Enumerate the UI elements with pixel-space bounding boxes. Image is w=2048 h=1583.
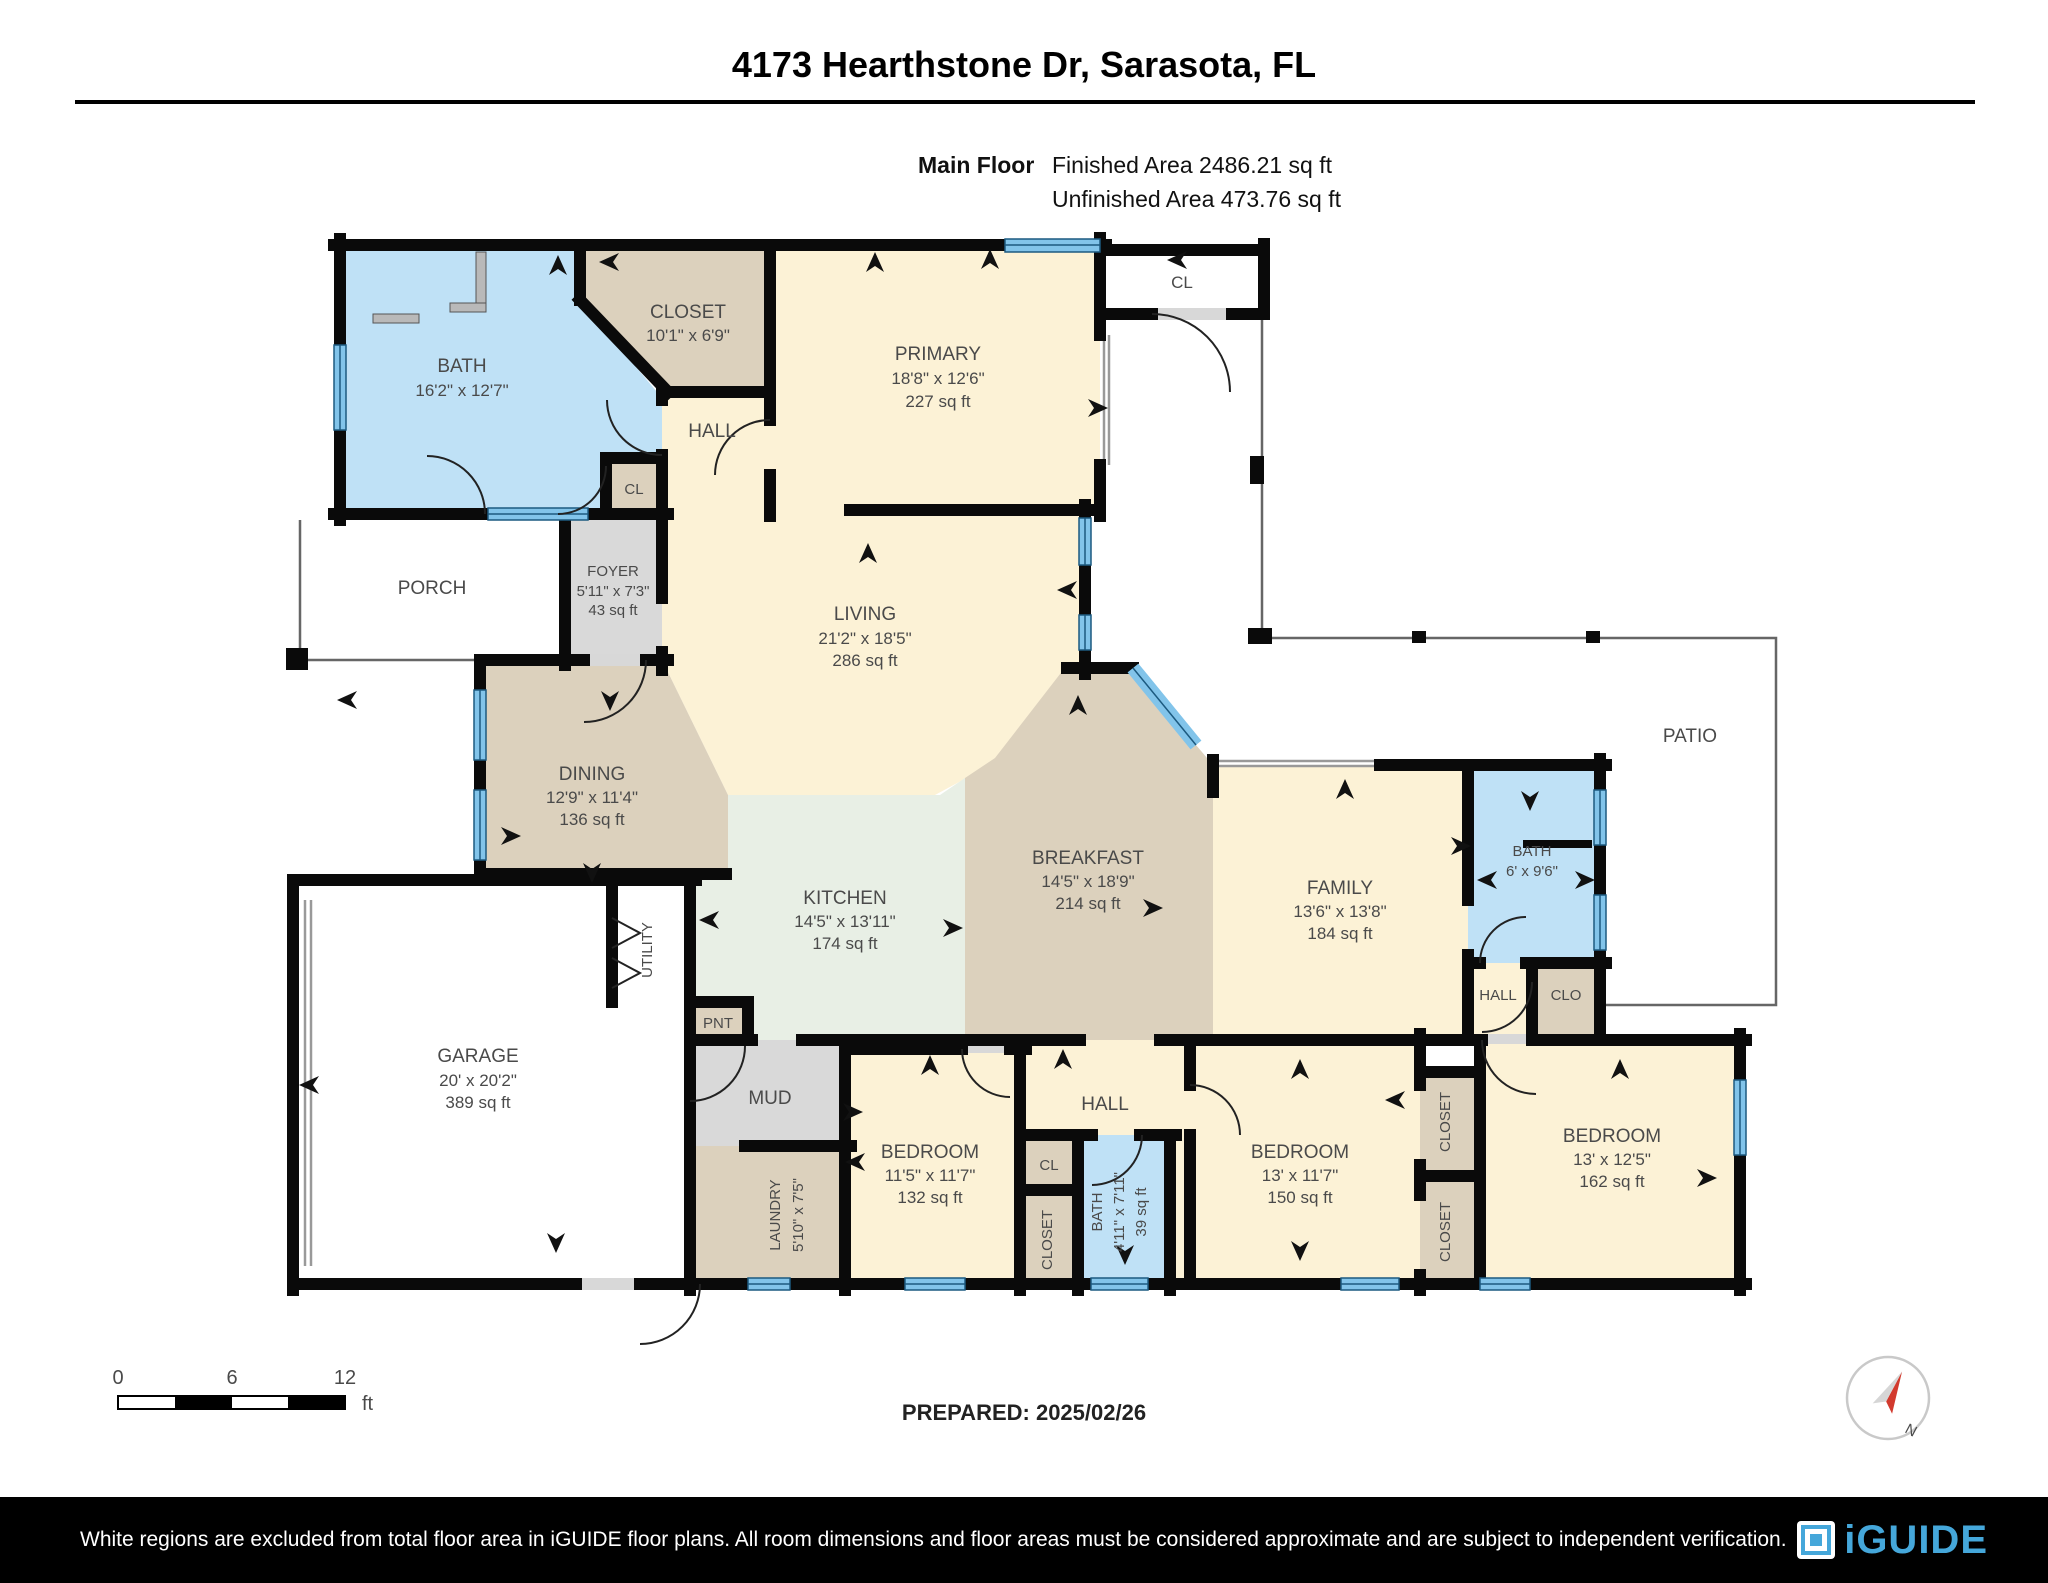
label-breakfast-area: 214 sq ft: [1055, 894, 1120, 913]
label-garage-area: 389 sq ft: [445, 1093, 510, 1112]
label-bedroom3-dims: 13' x 12'5": [1573, 1150, 1651, 1169]
label-dining-name: DINING: [559, 764, 626, 785]
floor-plan-drawing: BATH 16'2" x 12'7" CLOSET 10'1" x 6'9" P…: [0, 0, 2048, 1583]
iguide-logo-icon: [1796, 1520, 1836, 1560]
label-living-area: 286 sq ft: [832, 651, 897, 670]
label-bedroom1-name: BEDROOM: [881, 1142, 979, 1163]
label-bath3-area: 39 sq ft: [1133, 1187, 1150, 1237]
label-closet2: CLOSET: [1039, 1210, 1056, 1270]
label-closet4: CLOSET: [1437, 1202, 1454, 1262]
label-bedroom1-area: 132 sq ft: [897, 1188, 962, 1207]
label-bedroom2-name: BEDROOM: [1251, 1142, 1349, 1163]
label-hall1: HALL: [688, 421, 736, 442]
label-primary-area: 227 sq ft: [905, 392, 970, 411]
label-bedroom2-dims: 13' x 11'7": [1262, 1166, 1338, 1185]
label-breakfast-name: BREAKFAST: [1032, 848, 1144, 869]
label-bath2-name: BATH: [1513, 843, 1552, 860]
label-hall3: HALL: [1479, 987, 1517, 1004]
label-family-name: FAMILY: [1307, 878, 1373, 899]
label-utility: UTILITY: [639, 922, 656, 978]
label-bedroom3-name: BEDROOM: [1563, 1126, 1661, 1147]
label-bedroom2-area: 150 sq ft: [1267, 1188, 1332, 1207]
label-bath3-dims: 4'11" x 7'11": [1111, 1172, 1128, 1252]
iguide-logo: iGUIDE: [1796, 1518, 1988, 1563]
scale-6: 6: [226, 1367, 237, 1389]
scale-12: 12: [334, 1367, 356, 1389]
label-hall2: HALL: [1081, 1094, 1129, 1115]
label-mud: MUD: [748, 1088, 791, 1109]
family-slider: [1218, 761, 1374, 766]
iguide-logo-text: iGUIDE: [1844, 1518, 1988, 1563]
prepared-date: PREPARED: 2025/02/26: [0, 1400, 2048, 1426]
footer-bar: White regions are excluded from total fl…: [0, 1497, 2048, 1583]
label-bath1-name: BATH: [437, 356, 486, 377]
label-kitchen-dims: 14'5" x 13'11": [794, 912, 895, 931]
label-laundry-name: LAUNDRY: [767, 1179, 784, 1250]
primary-slider: [1104, 335, 1109, 465]
label-family-area: 184 sq ft: [1307, 924, 1372, 943]
label-closet1-name: CLOSET: [650, 302, 726, 323]
disclaimer-text: White regions are excluded from total fl…: [80, 1528, 1796, 1552]
label-dining-area: 136 sq ft: [559, 810, 624, 829]
label-bedroom3-area: 162 sq ft: [1579, 1172, 1644, 1191]
label-breakfast-dims: 14'5" x 18'9": [1041, 872, 1134, 891]
label-patio: PATIO: [1663, 726, 1717, 747]
label-cl3: CL: [1039, 1157, 1058, 1174]
label-foyer-name: FOYER: [587, 563, 639, 580]
label-closet1-dims: 10'1" x 6'9": [646, 326, 730, 345]
label-porch: PORCH: [398, 578, 467, 599]
scale-0: 0: [112, 1367, 123, 1389]
label-primary-dims: 18'8" x 12'6": [891, 369, 984, 388]
label-cl2: CL: [624, 481, 643, 498]
label-bath2-dims: 6' x 9'6": [1506, 863, 1558, 880]
room-hall2: [1020, 1040, 1190, 1135]
label-garage-name: GARAGE: [437, 1046, 518, 1067]
label-clo: CLO: [1551, 987, 1582, 1004]
label-foyer-dims: 5'11" x 7'3": [577, 583, 650, 600]
label-family-dims: 13'6" x 13'8": [1293, 902, 1386, 921]
label-laundry-dims: 5'10" x 7'5": [790, 1178, 807, 1252]
label-garage-dims: 20' x 20'2": [439, 1071, 517, 1090]
label-closet3: CLOSET: [1437, 1092, 1454, 1152]
label-dining-dims: 12'9" x 11'4": [546, 788, 638, 807]
label-living-name: LIVING: [834, 604, 896, 625]
label-foyer-area: 43 sq ft: [588, 602, 638, 619]
label-kitchen-name: KITCHEN: [803, 888, 886, 909]
label-bedroom1-dims: 11'5" x 11'7": [885, 1166, 976, 1185]
label-primary-name: PRIMARY: [895, 344, 982, 365]
label-kitchen-area: 174 sq ft: [812, 934, 877, 953]
label-pnt: PNT: [703, 1015, 733, 1032]
label-cl1: CL: [1171, 273, 1193, 292]
label-bath1-dims: 16'2" x 12'7": [415, 381, 508, 400]
floor-plan-page: 4173 Hearthstone Dr, Sarasota, FL Main F…: [0, 0, 2048, 1583]
compass: N: [1847, 1357, 1929, 1441]
label-living-dims: 21'2" x 18'5": [818, 629, 911, 648]
label-bath3-name: BATH: [1089, 1193, 1106, 1232]
